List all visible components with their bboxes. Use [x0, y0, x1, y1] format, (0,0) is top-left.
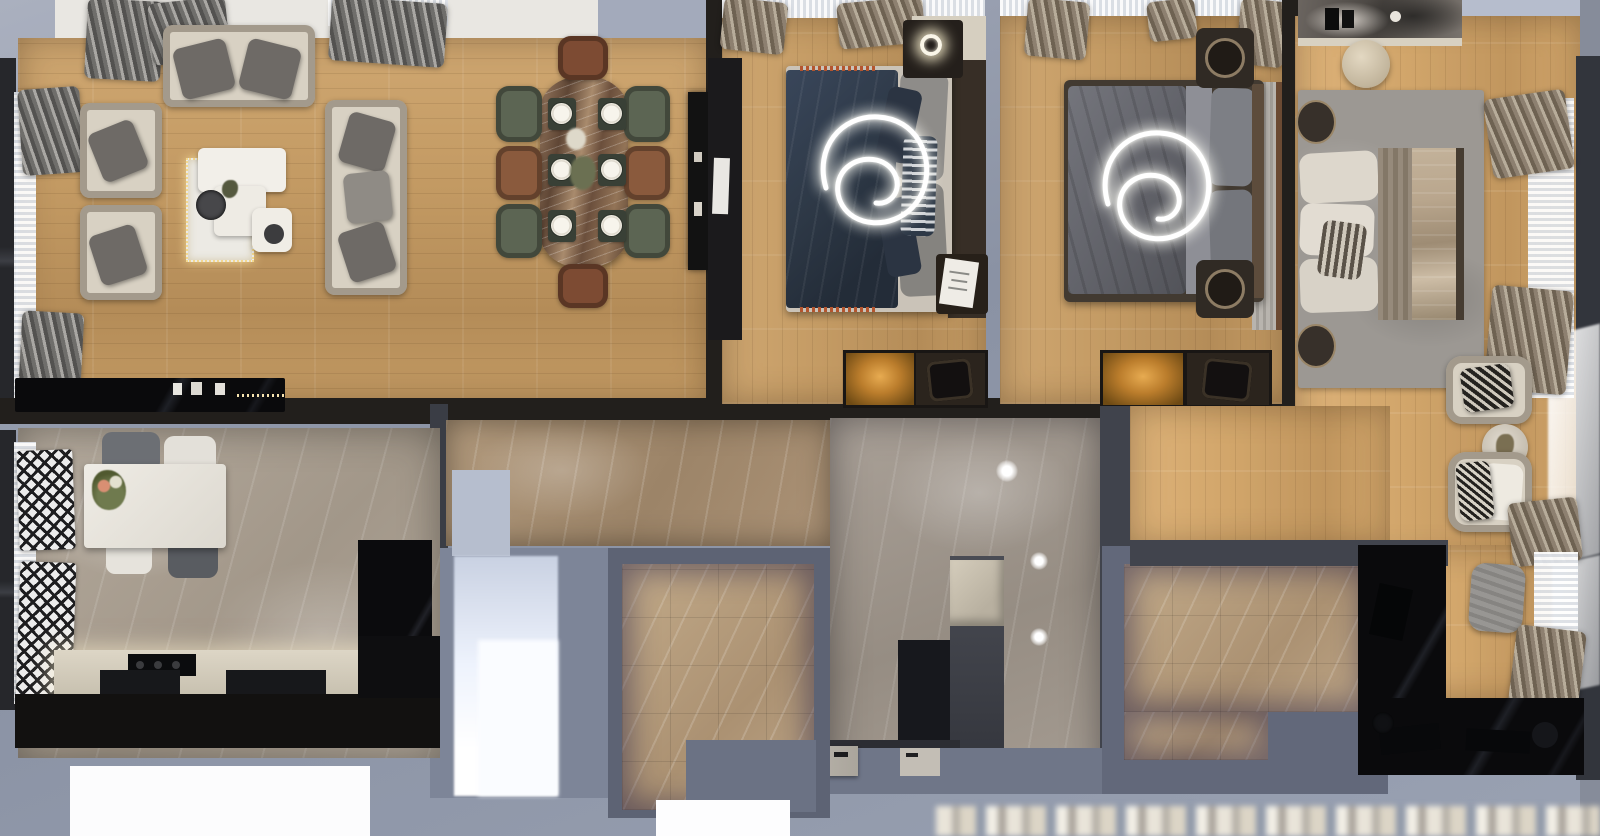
desk-lamp-base-icon — [1532, 722, 1558, 748]
desk-item — [1465, 728, 1530, 753]
living-drape-top-left — [17, 86, 85, 176]
sofa-two-seat-side — [325, 100, 407, 295]
lightwell-glow-core — [478, 640, 558, 796]
wardrobe-lit-cell — [846, 353, 914, 405]
wardrobe-dark-cell — [916, 353, 985, 405]
entry-door-shadow — [898, 640, 950, 748]
dining-chair-left-1 — [496, 86, 542, 142]
bedroom1-drape-top-1 — [719, 0, 788, 55]
sofa-pillow — [343, 170, 394, 225]
bathroom2-floor — [1124, 564, 1370, 712]
master-vanity-marble — [1298, 0, 1462, 40]
tray-icon — [264, 224, 284, 244]
duvet-fringe — [800, 66, 876, 71]
wall-entry-bottom — [830, 748, 1130, 794]
place-setting — [598, 210, 626, 242]
accent-pillow-striped — [1316, 219, 1367, 281]
sofa-pillow — [337, 110, 397, 173]
bedroom2-nightstand-bottom — [1196, 260, 1254, 318]
place-setting — [598, 98, 626, 130]
balcony-white-left — [70, 766, 370, 836]
dining-chair-right-2 — [624, 146, 670, 200]
bed-blanket-fold — [1378, 148, 1412, 320]
ring-lamp-icon — [920, 34, 942, 56]
dining-chair-left-3 — [496, 204, 542, 258]
plate-icon — [601, 103, 622, 124]
place-setting — [598, 154, 626, 186]
kitchen-pattern-drape-top — [16, 449, 75, 551]
place-setting — [548, 210, 576, 242]
vanity-comb-icon — [1342, 10, 1354, 28]
spiral-ceiling-lamp-icon — [1078, 108, 1228, 260]
kitchen-table — [84, 464, 226, 548]
plate-icon — [551, 103, 572, 124]
table-flowers-icon — [566, 128, 586, 150]
desk-bowl-icon — [1372, 712, 1394, 734]
armchair-pillow — [86, 118, 150, 184]
side-table-small — [252, 208, 292, 252]
photo-frame-icon — [215, 383, 225, 395]
ceiling-light-icon — [1030, 552, 1048, 570]
master-armchair-1 — [1446, 356, 1532, 424]
sofa-pillow — [336, 220, 398, 284]
wardrobe-pillow-icon — [1201, 358, 1253, 403]
ceiling-light-icon — [996, 460, 1018, 482]
bedroom1-nightstand-bottom — [936, 254, 988, 314]
master-nightstand-bottom — [1296, 324, 1336, 368]
bedroom1-nightstand-top — [903, 20, 963, 78]
dining-drape-top — [328, 0, 448, 68]
photo-frame-icon — [191, 382, 202, 395]
gray-pouf — [1468, 562, 1527, 634]
balcony-white-mid — [656, 800, 790, 836]
dining-chair-head-top — [558, 36, 608, 80]
lightwell-upper-notch — [452, 470, 510, 556]
plate-icon — [551, 215, 572, 236]
street-bokeh-strip — [936, 806, 1600, 836]
counter-recess — [226, 670, 326, 696]
decor-dot — [694, 152, 702, 162]
wardrobe-lit-cell — [1103, 353, 1183, 405]
patterned-cushion — [1459, 363, 1515, 414]
dining-chair-head-bottom — [558, 264, 608, 308]
wardrobe-dark-cell — [1187, 353, 1269, 405]
master-bed — [1298, 148, 1462, 320]
flower-vase-icon — [92, 470, 126, 510]
armchair-pillow — [87, 223, 149, 287]
dining-chair-left-2 — [496, 146, 542, 200]
kitchen-tall-cabinet — [358, 540, 432, 636]
plate-icon — [551, 159, 572, 180]
round-table-top-icon — [1205, 269, 1245, 309]
bedroom2-nightstand-top — [1196, 28, 1254, 88]
bedroom1-wardrobe-lit — [843, 350, 988, 408]
master-drape-right-top — [1483, 89, 1575, 180]
bedroom2-wardrobe-lit — [1100, 350, 1272, 408]
bed-frame-edge — [1456, 148, 1464, 320]
dining-chair-right-1 — [624, 86, 670, 142]
tv-photo-frame-icon — [712, 158, 730, 215]
place-setting — [548, 98, 576, 130]
console-led-strip — [237, 394, 285, 397]
vanity-comb-icon — [1325, 8, 1339, 30]
ceiling-light-icon — [1030, 628, 1048, 646]
kitchen-tall-cabinet-lower — [358, 636, 440, 698]
bathroom2-floor-lower — [1124, 712, 1268, 760]
bedroom2-drape-top-2 — [1146, 0, 1198, 42]
office-floor-left — [1130, 406, 1390, 546]
entry-cabinet-top — [950, 560, 1004, 626]
vanity-stool — [1342, 40, 1390, 88]
kitchen-base-cabinets — [15, 694, 440, 748]
decor-dot — [694, 202, 702, 216]
plate-icon — [601, 215, 622, 236]
sofa-three-seat — [163, 25, 315, 107]
round-table-top-icon — [1205, 38, 1245, 78]
kitchen-counter-lit — [54, 650, 380, 698]
door-handle-icon — [834, 752, 848, 757]
master-nightstand-top — [1296, 100, 1336, 144]
door-handle-icon — [906, 753, 918, 757]
apartment-floorplan-render: { "scene": { "label": "Top-down 3D rende… — [0, 0, 1600, 836]
sofa-cushion — [238, 37, 303, 101]
armchair-1 — [80, 103, 162, 198]
framed-art-icon — [939, 258, 979, 308]
dining-sideboard — [688, 92, 708, 270]
counter-recess — [100, 670, 180, 696]
wardrobe-pillow-icon — [926, 358, 974, 402]
rug-tray-icon — [196, 190, 226, 220]
spiral-ceiling-lamp-icon — [796, 92, 946, 244]
bedroom1-tv-wardrobe — [708, 58, 742, 340]
bed-pillow — [1299, 150, 1380, 204]
dining-chair-right-3 — [624, 204, 670, 258]
plate-icon — [601, 159, 622, 180]
tv-console — [15, 378, 285, 412]
photo-frame-icon — [173, 383, 182, 395]
bedroom2-drape-top-1 — [1024, 0, 1091, 61]
armchair-2 — [80, 205, 162, 300]
vanity-dish-icon — [1390, 11, 1401, 22]
duvet-champagne — [1412, 148, 1460, 320]
patterned-throw — [1455, 460, 1495, 521]
sofa-cushion — [172, 37, 237, 101]
entry-door-slab-2 — [900, 748, 940, 776]
duvet-fringe — [800, 307, 876, 312]
